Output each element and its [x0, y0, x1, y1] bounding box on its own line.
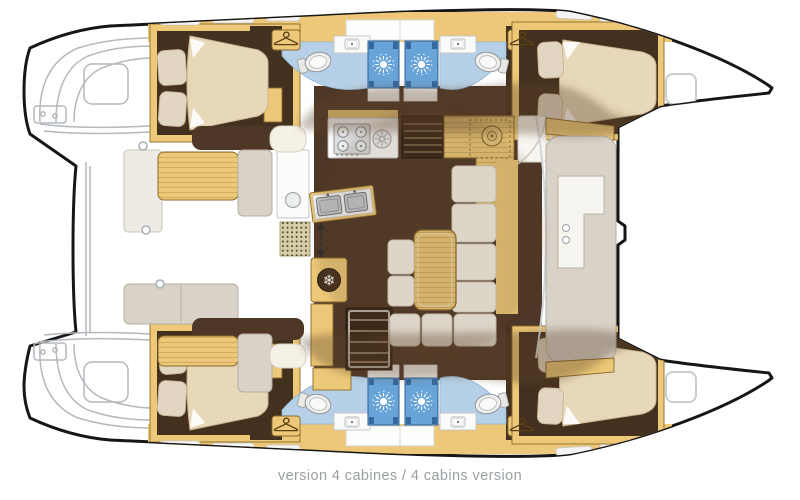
deck-hatch-icon — [666, 372, 696, 402]
floorplan-drawing: ❄ — [0, 0, 800, 500]
roof-shadow-overlay — [315, 108, 545, 358]
deck-fitting — [139, 142, 147, 150]
deck-fitting — [156, 280, 164, 288]
deck-fitting — [142, 226, 150, 234]
round-sink-icon — [286, 193, 301, 208]
cockpit-cushion — [270, 344, 306, 368]
cockpit-bench — [238, 334, 272, 392]
cup-holder — [563, 237, 570, 244]
cockpit-cushion — [270, 126, 306, 152]
deck-hatch-icon — [666, 74, 696, 104]
cockpit-table — [158, 152, 238, 200]
cup-holder — [563, 225, 570, 232]
cockpit-bench — [238, 150, 272, 216]
cockpit-bench — [124, 150, 162, 232]
version-caption: version 4 cabines / 4 cabins version — [0, 468, 800, 484]
cockpit-table — [158, 336, 238, 366]
catamaran-floorplan: ❄ — [0, 0, 800, 500]
